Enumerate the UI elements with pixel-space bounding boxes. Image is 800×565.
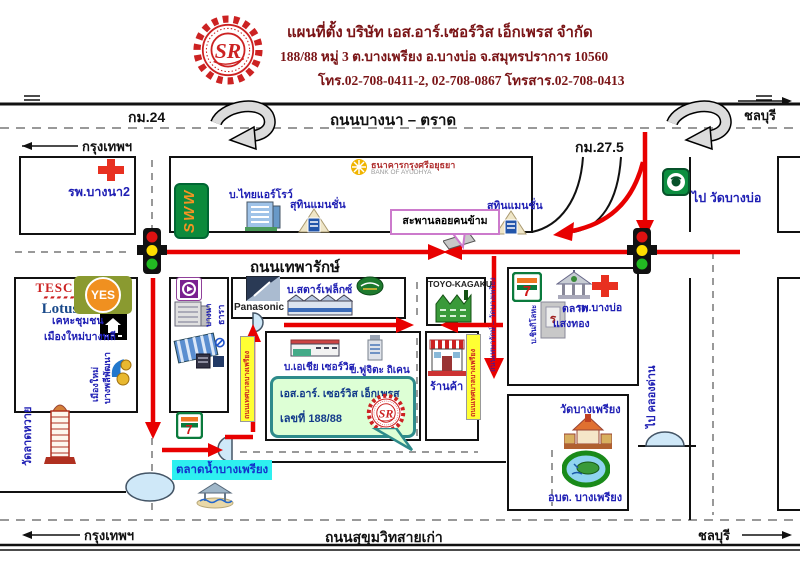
krungsri-bank-icon — [350, 158, 368, 176]
office-building-icon — [243, 198, 285, 232]
map-title: แผนที่ตั้ง บริษัท เอส.อาร์.เซอร์วิส เอ็ก… — [287, 20, 593, 44]
sukhumvit-old-label: ถนนสุขุมวิทสายเก่า — [325, 527, 443, 549]
side-road-yellow-label-right: ถนนเทศบาลบางเพรียง — [466, 334, 481, 420]
floating-market-icon — [196, 481, 234, 509]
bangkok-bottom-label: กรุงเทพฯ — [84, 525, 134, 546]
obt-emblem-icon — [562, 450, 610, 488]
khehachumchon-label-1: เคหะชุมชน — [52, 312, 104, 329]
arrowhead-bangkok-top — [22, 142, 32, 150]
arrowhead-chonburi-bottom — [782, 531, 792, 539]
thai-arrow-label: บ.ไทยแอร์โรว์ — [229, 186, 293, 203]
footbridge-callout: สะพานลอยคนข้าม — [390, 209, 500, 235]
to-khlong-dan-label: ไป คลองด่าน — [642, 344, 660, 428]
soi-company-road-label: ถนนเทพารักษ์ – วัดบางเพรียง — [487, 276, 499, 372]
to-wat-bangbo-label: ไป วัดบางบ่อ — [692, 188, 761, 208]
hospital-cross-icon-bangbo — [592, 275, 618, 297]
company-address: 188/88 หมู่ 3 ต.บางเพรียง อ.บางบ่อ จ.สมุ… — [280, 45, 608, 67]
wat-ladhwai-temple-icon — [44, 403, 76, 465]
hospital-bangna2-label: รพ.บางนา2 — [68, 182, 130, 202]
kasikorn-bank-icon — [662, 168, 690, 196]
dark-equipment-icon — [196, 352, 226, 370]
company-phone: โทร.02-708-0411-2, 02-708-0867 โทรสาร.02… — [318, 69, 624, 91]
toyo-kagaku-label: TOYO-KAGAKU — [428, 279, 492, 289]
sangthong-label-2: แสงทอง — [553, 315, 590, 332]
bridge-ellipse-icon — [126, 473, 174, 501]
seven-eleven-icon-left: 7 — [176, 412, 203, 439]
panasonic-label: Panasonic — [234, 302, 284, 313]
asia-service-building-icon — [290, 333, 342, 361]
thepharak-label: ถนนเทพารักษ์ — [250, 255, 340, 279]
company-callout-line2: เลขที่ 188/88 — [280, 409, 342, 427]
purple-brand-logo-icon — [176, 277, 202, 301]
hospital-cross-icon — [98, 159, 124, 181]
village-label-2: ธารา — [214, 297, 228, 325]
shop-label: ร้านค้า — [430, 377, 463, 395]
arrowhead-bangkok-bottom — [22, 531, 32, 539]
km275-label: กม.27.5 — [575, 137, 624, 159]
shop-icon — [428, 332, 466, 376]
floating-market-label: ตลาดน้ำบางเพรียง — [172, 460, 272, 480]
bangkok-top-label: กรุงเทพฯ — [82, 136, 132, 157]
wat-bangphriang-temple-icon — [564, 414, 612, 450]
bridge-arc-icon — [646, 432, 684, 446]
company-logo-gear-icon: SR — [192, 8, 264, 92]
wat-bangphriang-label: วัดบางเพรียง — [560, 400, 621, 418]
footbridge-label: สะพานลอยคนข้าม — [402, 215, 487, 227]
sww-sign-label: SWW — [181, 187, 198, 233]
panasonic-icon — [246, 276, 280, 301]
chonburi-bottom-label: ชลบุรี — [698, 525, 730, 546]
sangthong-pavilion-icon — [556, 270, 592, 300]
hospital-bangbo-label: รพ.บางบ่อ — [576, 299, 622, 316]
muangmai-label-2: บางพลีพัฒนา — [100, 348, 114, 404]
green-brand-logo-icon — [356, 276, 384, 296]
sww-sign: SWW — [174, 183, 209, 239]
khehachumchon-label-2: เมืองใหม่บางพลี — [44, 328, 116, 345]
km24-label: กม.24 — [128, 107, 165, 129]
wat-ladhwai-label: วัดลาดหวาย — [18, 400, 36, 466]
location-map: SR แผนที่ตั้ง บริษัท เอส.อาร์.เซอร์วิส เ… — [0, 0, 800, 565]
toyo-factory-icon — [434, 290, 474, 324]
starflex-label: บ.สตาร์เฟล็กซ์ — [287, 281, 352, 298]
bangna-trad-label: ถนนบางนา – ตราด — [330, 108, 456, 132]
krungsri-bank-name-en: BANK OF AYUDHYA — [371, 169, 431, 176]
obt-bangphriang-label: อบต. บางเพรียง — [548, 488, 622, 506]
company-callout-gear-icon — [365, 393, 407, 433]
yes-label: YES — [85, 277, 121, 313]
asia-service-label: บ.เอเชีย เซอร์วิส — [284, 360, 355, 375]
side-road-yellow-label-left: ถนนเทศบาลบางเพรียง — [240, 336, 255, 422]
suthin-mansion-label-1: สุทินแมนชั่น — [290, 196, 346, 213]
company-callout-tail — [368, 428, 424, 454]
seven-eleven-7-left: 7 — [185, 422, 192, 437]
fujita-building-icon — [360, 335, 390, 362]
shinki-label: บ.ชินกิโลหะ — [528, 296, 540, 344]
blue-o-logo-icon: ⊘ — [214, 334, 226, 351]
traffic-light-left-icon — [137, 228, 167, 274]
chonburi-top-label: ชลบุรี — [744, 105, 776, 126]
km-tick-marks — [24, 96, 772, 100]
yes-sign: YES — [74, 276, 132, 314]
